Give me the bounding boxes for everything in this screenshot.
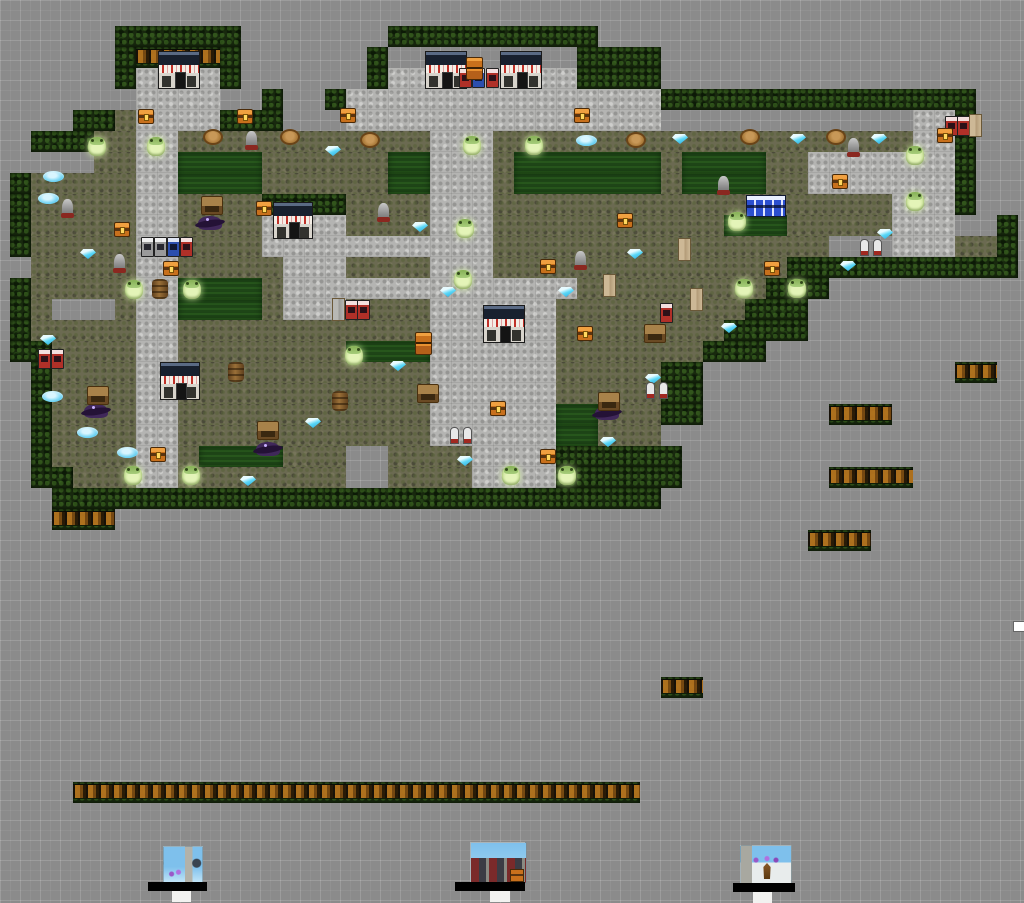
tile-hedge — [31, 467, 73, 488]
sprite-frog[interactable] — [906, 192, 924, 211]
tile-path — [136, 173, 178, 194]
sprite-frog[interactable] — [454, 270, 472, 289]
sprite-gravepair[interactable] — [646, 382, 668, 399]
shop-door — [500, 326, 511, 342]
tile-grass — [661, 152, 682, 173]
tile-path — [136, 467, 178, 488]
tile-hedge — [115, 47, 136, 68]
tile-hedge — [745, 299, 808, 320]
tile-hedge — [577, 47, 661, 68]
tile-path — [136, 404, 178, 425]
tile-grass — [178, 320, 430, 341]
decal-stub — [172, 891, 191, 902]
shop-roof — [161, 363, 199, 377]
shop-door — [176, 383, 187, 399]
tile-grass — [556, 341, 703, 362]
tile-lawn — [514, 152, 661, 173]
tile-hedge — [997, 215, 1018, 236]
shop-building[interactable] — [500, 51, 542, 89]
tile-hedge — [787, 257, 1018, 278]
sprite-urn[interactable] — [246, 131, 257, 150]
tile-path — [262, 236, 493, 257]
sprite-bench[interactable] — [417, 384, 439, 403]
sprite-puddle[interactable] — [42, 391, 63, 402]
sprite-gravepair[interactable] — [860, 239, 882, 256]
tile-grass — [787, 215, 892, 236]
tile-lawn — [178, 152, 262, 173]
tile-grass — [388, 467, 472, 488]
sprite-frog[interactable] — [735, 279, 753, 298]
sprite-frog[interactable] — [502, 466, 520, 485]
tile-path — [136, 215, 178, 236]
tile-path — [430, 425, 556, 446]
tile-hedge — [10, 320, 31, 341]
sprite-frog[interactable] — [525, 136, 543, 155]
sprite-puddle[interactable] — [576, 135, 597, 146]
sprite-bat[interactable] — [256, 442, 280, 456]
sprite-bench[interactable] — [644, 324, 666, 343]
tile-grass — [178, 257, 283, 278]
tile-hedge — [52, 488, 661, 509]
tile-hedge-crates — [73, 782, 640, 803]
tile-path — [346, 89, 661, 110]
shop-door — [517, 72, 528, 88]
shop-roof — [274, 203, 312, 217]
decal-black-bar — [148, 882, 207, 891]
tile-hedge — [661, 89, 976, 110]
sprite-chest[interactable] — [138, 109, 154, 124]
tile-path — [346, 110, 661, 131]
tile-grass — [178, 425, 430, 446]
sprite-frog[interactable] — [456, 219, 474, 238]
tile-grass — [556, 299, 745, 320]
tile-hedge — [31, 131, 94, 152]
tile-grass — [661, 173, 682, 194]
tile-hedge — [115, 26, 241, 47]
shop-building[interactable] — [160, 362, 200, 400]
tile-grass — [262, 152, 388, 173]
tile-grass — [346, 257, 430, 278]
tile-path — [136, 89, 220, 110]
tile-grass — [766, 152, 808, 173]
sprite-urn[interactable] — [62, 199, 73, 218]
tile-grass — [178, 341, 346, 362]
tile-grass — [178, 383, 430, 404]
shop-roof — [426, 52, 466, 66]
sprite-urn[interactable] — [114, 254, 125, 273]
sprite-chest[interactable] — [540, 449, 556, 464]
tile-path — [283, 278, 577, 299]
sprite-frog[interactable] — [728, 212, 746, 231]
sprite-chest[interactable] — [163, 261, 179, 276]
tile-lawn — [178, 173, 262, 194]
tile-grass — [766, 173, 808, 194]
tile-grass — [556, 362, 661, 383]
tile-hedge-crates — [808, 530, 871, 551]
shop-building[interactable] — [483, 305, 525, 343]
tile-hedge — [10, 194, 31, 215]
shop-door — [175, 72, 186, 88]
tile-hedge — [262, 89, 283, 110]
tile-grass — [31, 299, 52, 320]
sprite-vend-red[interactable] — [38, 349, 51, 369]
tile-path — [808, 152, 955, 173]
sprite-chest[interactable] — [340, 108, 356, 123]
tile-path — [892, 215, 955, 236]
tile-grass — [388, 446, 472, 467]
tile-hedge — [724, 320, 808, 341]
tile-lawn — [178, 299, 262, 320]
tile-grass — [31, 278, 136, 299]
sprite-frog[interactable] — [88, 137, 106, 156]
sprite-stump[interactable] — [740, 129, 760, 145]
tile-lawn — [388, 173, 430, 194]
tile-hedge — [703, 341, 766, 362]
tile-path — [136, 425, 178, 446]
tile-hedge-crates — [955, 362, 997, 383]
decal-black-bar — [455, 882, 525, 891]
tile-hedge — [955, 194, 976, 215]
sprite-puddle[interactable] — [117, 447, 138, 458]
tile-path — [430, 152, 493, 173]
tile-grass — [178, 467, 346, 488]
sprite-chest[interactable] — [832, 174, 848, 189]
sprite-frog[interactable] — [182, 466, 200, 485]
tile-path — [136, 194, 178, 215]
tile-grass — [262, 278, 283, 299]
sprite-chest[interactable] — [540, 259, 556, 274]
sprite-frog[interactable] — [463, 136, 481, 155]
decal-stub — [753, 892, 772, 903]
tile-path — [430, 173, 493, 194]
sprite-puddle[interactable] — [38, 193, 59, 204]
tile-hedge — [31, 446, 52, 467]
sprite-puddle[interactable] — [77, 427, 98, 438]
tile-path — [430, 131, 493, 152]
sprite-chest[interactable] — [764, 261, 780, 276]
sprite-chest[interactable] — [937, 128, 953, 143]
sprite-bench[interactable] — [257, 421, 279, 440]
tile-path — [136, 299, 178, 320]
sprite-barrel[interactable] — [332, 391, 348, 411]
shop-roof — [501, 52, 541, 66]
shop-roof — [484, 306, 524, 320]
sprite-bench[interactable] — [201, 196, 223, 215]
sprite-vend-blue[interactable] — [167, 237, 180, 257]
sprite-stump[interactable] — [826, 129, 846, 145]
sprite-vend-gray[interactable] — [141, 237, 154, 257]
sprite-stump[interactable] — [280, 129, 300, 145]
tile-hedge — [955, 152, 976, 173]
tile-hedge — [661, 362, 703, 383]
tile-hedge — [577, 68, 661, 89]
tile-hedge — [388, 26, 598, 47]
tile-grass — [493, 173, 514, 194]
tile-path — [892, 236, 955, 257]
sprite-frog[interactable] — [147, 137, 165, 156]
sprite-door-beige[interactable] — [969, 114, 982, 137]
sprite-gravepair[interactable] — [450, 427, 472, 444]
sprite-barrel[interactable] — [228, 362, 244, 382]
sprite-stump[interactable] — [360, 132, 380, 148]
tile-grass — [493, 257, 787, 278]
tile-path — [136, 320, 178, 341]
tile-grass — [283, 446, 346, 467]
tile-grass — [262, 299, 283, 320]
sprite-puddle[interactable] — [43, 171, 64, 182]
sprite-chest[interactable] — [256, 201, 272, 216]
sprite-vend-red[interactable] — [180, 237, 193, 257]
tile-lawn — [514, 173, 661, 194]
decal-image — [740, 845, 792, 884]
shop-door — [442, 72, 453, 88]
sprite-urn[interactable] — [575, 251, 586, 270]
tile-path — [430, 341, 556, 362]
tile-hedge — [367, 68, 388, 89]
sprite-vend-red[interactable] — [51, 349, 64, 369]
tile-hedge — [556, 446, 682, 467]
sprite-vend-red[interactable] — [660, 303, 673, 323]
sprite-frog[interactable] — [558, 466, 576, 485]
tile-grass — [178, 404, 430, 425]
tile-grass — [178, 446, 199, 467]
sprite-vend-red[interactable] — [357, 300, 370, 320]
tile-grass — [115, 299, 136, 320]
tile-hedge — [10, 215, 31, 236]
shop-building[interactable] — [158, 51, 200, 89]
sprite-chest[interactable] — [150, 447, 166, 462]
sprite-stump[interactable] — [203, 129, 223, 145]
map-canvas[interactable] — [0, 0, 1024, 631]
tile-grass — [955, 236, 997, 257]
tile-hedge-crates — [52, 509, 115, 530]
tile-hedge — [73, 110, 115, 131]
sprite-vend-gray[interactable] — [154, 237, 167, 257]
sprite-stump[interactable] — [626, 132, 646, 148]
tile-hedge-crates — [661, 677, 703, 698]
tile-grass — [493, 194, 892, 215]
sprite-frog[interactable] — [345, 346, 363, 365]
sprite-door-beige[interactable] — [690, 288, 703, 311]
decal-image — [163, 846, 203, 884]
sprite-bluerow[interactable] — [746, 195, 786, 217]
tile-hedge — [31, 425, 52, 446]
sprite-chest[interactable] — [574, 108, 590, 123]
tile-hedge — [220, 68, 241, 89]
sprite-frog[interactable] — [183, 280, 201, 299]
sprite-chest[interactable] — [237, 109, 253, 124]
sprite-chest[interactable] — [490, 401, 506, 416]
tile-hedge-crates — [829, 404, 892, 425]
decal-stub — [490, 891, 510, 902]
tile-hedge — [955, 173, 976, 194]
shop-roof — [159, 52, 199, 66]
tile-lawn — [682, 152, 766, 173]
tile-path — [430, 362, 556, 383]
sprite-frog[interactable] — [906, 146, 924, 165]
tile-grass — [262, 173, 388, 194]
tile-grass — [115, 110, 136, 131]
sprite-chest[interactable] — [114, 222, 130, 237]
tile-path — [136, 341, 178, 362]
sprite-frog[interactable] — [124, 466, 142, 485]
sprite-bench[interactable] — [598, 392, 620, 411]
sprite-bat[interactable] — [84, 404, 108, 418]
sprite-chest[interactable] — [617, 213, 633, 228]
tile-path — [808, 173, 955, 194]
tile-grass — [52, 362, 136, 383]
tile-hedge — [367, 47, 388, 68]
tile-hedge — [10, 173, 31, 194]
tile-hedge — [325, 89, 346, 110]
sprite-frog[interactable] — [125, 280, 143, 299]
tile-path — [283, 257, 346, 278]
sprite-urn[interactable] — [378, 203, 389, 222]
tile-hedge — [661, 404, 703, 425]
sprite-vend-red[interactable] — [486, 68, 499, 88]
tile-hedge — [220, 47, 241, 68]
tile-hedge — [10, 236, 31, 257]
tile-hedge — [997, 236, 1018, 257]
decal-black-bar — [733, 883, 795, 892]
tile-grass — [493, 215, 724, 236]
tile-grass — [493, 236, 829, 257]
sprite-bench[interactable] — [87, 386, 109, 405]
sprite-crate2[interactable] — [415, 332, 432, 355]
sprite-door-beige[interactable] — [678, 238, 691, 261]
sprite-barrel[interactable] — [152, 279, 168, 299]
tile-hedge — [10, 299, 31, 320]
tile-lawn — [556, 425, 598, 446]
sprite-crate2[interactable] — [466, 57, 483, 80]
tile-hedge-crates — [829, 467, 913, 488]
tile-grass — [493, 152, 514, 173]
decal-chest-icon — [510, 869, 524, 882]
sprite-bat[interactable] — [198, 216, 222, 230]
sprite-chest[interactable] — [577, 326, 593, 341]
sprite-urn[interactable] — [718, 176, 729, 195]
tile-hedge — [31, 404, 52, 425]
tile-hedge — [115, 68, 136, 89]
tile-hedge — [10, 278, 31, 299]
tile-grass — [52, 341, 136, 362]
shop-door — [289, 222, 300, 238]
sprite-frog[interactable] — [788, 279, 806, 298]
tile-lawn — [388, 152, 430, 173]
tile-path — [430, 194, 493, 215]
canvas-corner — [1013, 621, 1024, 632]
sprite-door-gray[interactable] — [332, 298, 345, 321]
sprite-door-beige[interactable] — [603, 274, 616, 297]
shop-building[interactable] — [273, 202, 313, 239]
sprite-urn[interactable] — [848, 138, 859, 157]
